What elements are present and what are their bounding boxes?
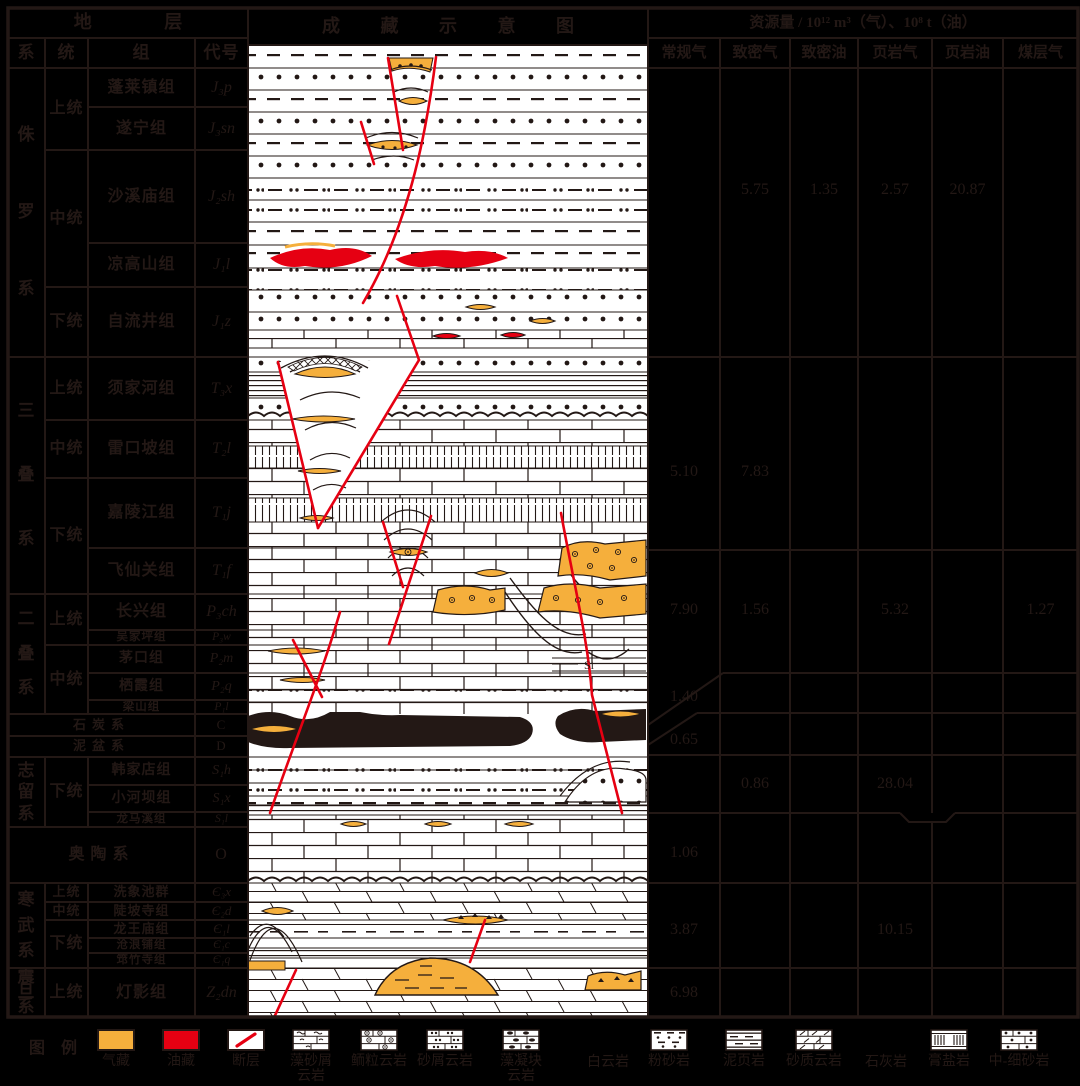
resource-value: 3.87 (650, 919, 718, 941)
series-cell: 下统 (45, 478, 88, 594)
formation-name-cell: 须家河组 (88, 357, 195, 420)
formation-name-cell: 陡坡寺组 (88, 902, 195, 920)
formation-name-cell: 吴家坪组 (88, 630, 195, 645)
series-cell: 下统 (45, 920, 88, 968)
formation-name-cell: 长兴组 (88, 594, 195, 630)
series-cell: 中统 (45, 902, 88, 920)
resource-value: 7.90 (650, 599, 718, 621)
formation-name-cell: 韩家店组 (88, 757, 195, 785)
formation-code-cell: J₃p (195, 68, 248, 107)
formation-name-cell: 自流井组 (88, 287, 195, 357)
merged-system-code-cell: C (195, 714, 248, 736)
resource-value: 5.32 (861, 599, 929, 621)
merged-system-cell: 石炭系 (8, 714, 195, 736)
resource-col-header: 致密气 (720, 38, 790, 68)
legend-swatch-sandy-dolo-icon (795, 1029, 833, 1051)
resource-value: 0.86 (721, 773, 789, 795)
formation-code-cell: T₁j (195, 478, 248, 548)
resource-value: 6.98 (650, 982, 718, 1004)
formation-name-cell: 沙溪庙组 (88, 150, 195, 243)
series-cell: 上统 (45, 594, 88, 645)
legend-label: 中-细砂岩 (971, 1054, 1067, 1069)
resource-value: 0.65 (650, 729, 718, 751)
formation-code-cell: J₂sh (195, 150, 248, 243)
system-cell: 寒武系 (8, 883, 45, 968)
series-cell: 上统 (45, 968, 88, 1017)
formation-name-cell: 小河坝组 (88, 785, 195, 812)
formation-code-cell: P₂q (195, 673, 248, 700)
resource-col-header: 常规气 (648, 38, 720, 68)
formation-name-cell: 洗象池群 (88, 883, 195, 902)
legend-swatch-mudshale-icon (725, 1029, 763, 1051)
formation-name-cell: 梁山组 (88, 700, 195, 714)
formation-code-cell: S₁x (195, 785, 248, 812)
formation-code-cell: P₂m (195, 645, 248, 673)
legend-swatch-fault-icon (227, 1029, 265, 1051)
formation-name-cell: 遂宁组 (88, 107, 195, 150)
series-cell: 下统 (45, 757, 88, 827)
formation-code-cell: T₃x (195, 357, 248, 420)
col-header-code: 代号 (195, 38, 248, 68)
series-cell: 上统 (45, 357, 88, 420)
series-cell: 中统 (45, 420, 88, 478)
resource-value: 5.75 (721, 179, 789, 201)
legend-swatch-oil-icon (162, 1029, 200, 1051)
col-header-system: 系 (8, 38, 45, 68)
formation-name-cell: 雷口坡组 (88, 420, 195, 478)
system-cell: 侏罗系 (8, 68, 45, 357)
resource-value: 1.40 (650, 686, 718, 708)
geological-column-figure: Si 地 层 成 藏 示 意 图 资源量 / 10¹² m³（气）、10⁸ t（… (0, 0, 1080, 1086)
resource-value: 10.15 (861, 919, 929, 941)
formation-name-cell: 茅口组 (88, 645, 195, 673)
series-cell: 上统 (45, 68, 88, 150)
legend-swatch-silt-icon (650, 1029, 688, 1051)
formation-name-cell: 龙王庙组 (88, 920, 195, 938)
formation-name-cell: 龙马溪组 (88, 812, 195, 827)
formation-code-cell: S₁h (195, 757, 248, 785)
col-header-series: 统 (45, 38, 88, 68)
resource-value: 1.56 (721, 599, 789, 621)
resource-col-header: 煤层气 (1003, 38, 1078, 68)
series-cell: 中统 (45, 645, 88, 714)
formation-code-cell: J₁l (195, 243, 248, 287)
system-cell: 二叠系 (8, 594, 45, 714)
legend-swatch-oolite-icon (360, 1029, 398, 1051)
system-cell: 震旦系 (8, 968, 45, 1017)
legend-swatch-gas-icon (97, 1029, 135, 1051)
formation-name-cell: 蓬莱镇组 (88, 68, 195, 107)
legend-swatch-alg-sand-icon (292, 1029, 330, 1051)
formation-name-cell: 嘉陵江组 (88, 478, 195, 548)
series-cell: 上统 (45, 883, 88, 902)
legend-swatch-sand-debris-icon (426, 1029, 464, 1051)
legend-label: 藻凝块云岩 (473, 1054, 569, 1084)
system-cell: 志留系 (8, 757, 45, 827)
resource-value: 20.87 (934, 179, 1002, 201)
resource-col-header: 页岩油 (932, 38, 1003, 68)
formation-code-cell: Є₁c (195, 938, 248, 953)
formation-code-cell: P₁l (195, 700, 248, 714)
formation-code-cell: P₃w (195, 630, 248, 645)
resource-value: 5.10 (650, 461, 718, 483)
formation-code-cell: J₁z (195, 287, 248, 357)
series-cell: 下统 (45, 287, 88, 357)
merged-system-code-cell: O (195, 827, 248, 883)
formation-code-cell: T₂l (195, 420, 248, 478)
resource-value: 7.83 (721, 461, 789, 483)
series-cell: 中统 (45, 150, 88, 287)
si-annotation: Si (584, 658, 595, 672)
resource-value: 1.06 (650, 842, 718, 864)
legend-swatch-gypsum-icon (930, 1029, 968, 1051)
formation-code-cell: T₁f (195, 548, 248, 594)
merged-system-cell: 泥盆系 (8, 736, 195, 757)
formation-name-cell: 凉高山组 (88, 243, 195, 287)
formation-code-cell: Є₂d (195, 902, 248, 920)
resource-value: 1.35 (790, 179, 858, 201)
formation-name-cell: 灯影组 (88, 968, 195, 1017)
reservoir-schematic: Si (248, 45, 648, 1017)
formation-code-cell: Є₃x (195, 883, 248, 902)
formation-name-cell: 栖霞组 (88, 673, 195, 700)
stratum-header: 地 层 (8, 8, 248, 38)
merged-system-code-cell: D (195, 736, 248, 757)
formation-name-cell: 沧浪铺组 (88, 938, 195, 953)
resource-value: 28.04 (861, 773, 929, 795)
formation-code-cell: Z₂dn (195, 968, 248, 1017)
resource-col-header: 页岩气 (858, 38, 932, 68)
formation-code-cell: S₁l (195, 812, 248, 827)
resource-value: 2.57 (861, 179, 929, 201)
col-header-formation: 组 (88, 38, 195, 68)
formation-code-cell: J₃sn (195, 107, 248, 150)
formation-name-cell: 飞仙关组 (88, 548, 195, 594)
legend-swatch-ms-sand-icon (1000, 1029, 1038, 1051)
resource-title: 资源量 / 10¹² m³（气）、10⁸ t（油） (648, 8, 1078, 38)
formation-code-cell: P₃ch (195, 594, 248, 630)
system-cell: 三叠系 (8, 357, 45, 594)
formation-code-cell: Є₁q (195, 953, 248, 968)
formation-code-cell: Є₁l (195, 920, 248, 938)
legend-swatch-alg-clot-icon (502, 1029, 540, 1051)
merged-system-cell: 奥陶系 (8, 827, 195, 883)
resource-col-header: 致密油 (790, 38, 858, 68)
formation-name-cell: 筇竹寺组 (88, 953, 195, 968)
resource-value: 1.27 (1007, 599, 1075, 621)
schematic-title: 成 藏 示 意 图 (248, 8, 648, 45)
